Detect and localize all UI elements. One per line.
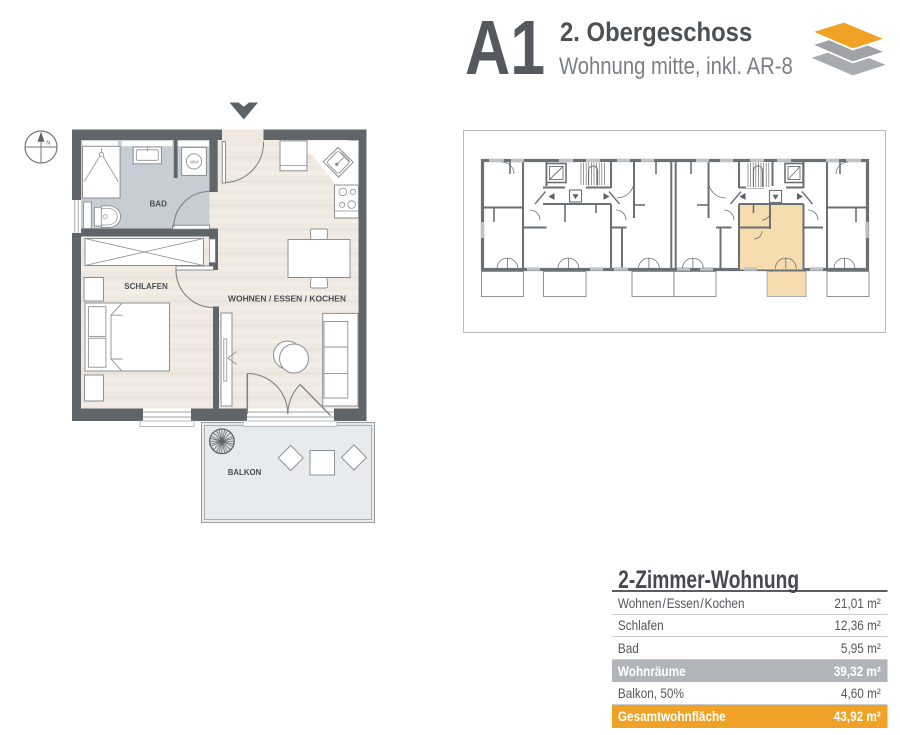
svg-text:BAD: BAD: [149, 198, 167, 208]
svg-text:N: N: [46, 141, 50, 147]
svg-text:SCHLAFEN: SCHLAFEN: [124, 281, 168, 291]
svg-text:BALKON: BALKON: [228, 467, 262, 477]
svg-text:WOHNEN / ESSEN / KOCHEN: WOHNEN / ESSEN / KOCHEN: [228, 294, 346, 304]
svg-text:WM: WM: [190, 159, 198, 164]
